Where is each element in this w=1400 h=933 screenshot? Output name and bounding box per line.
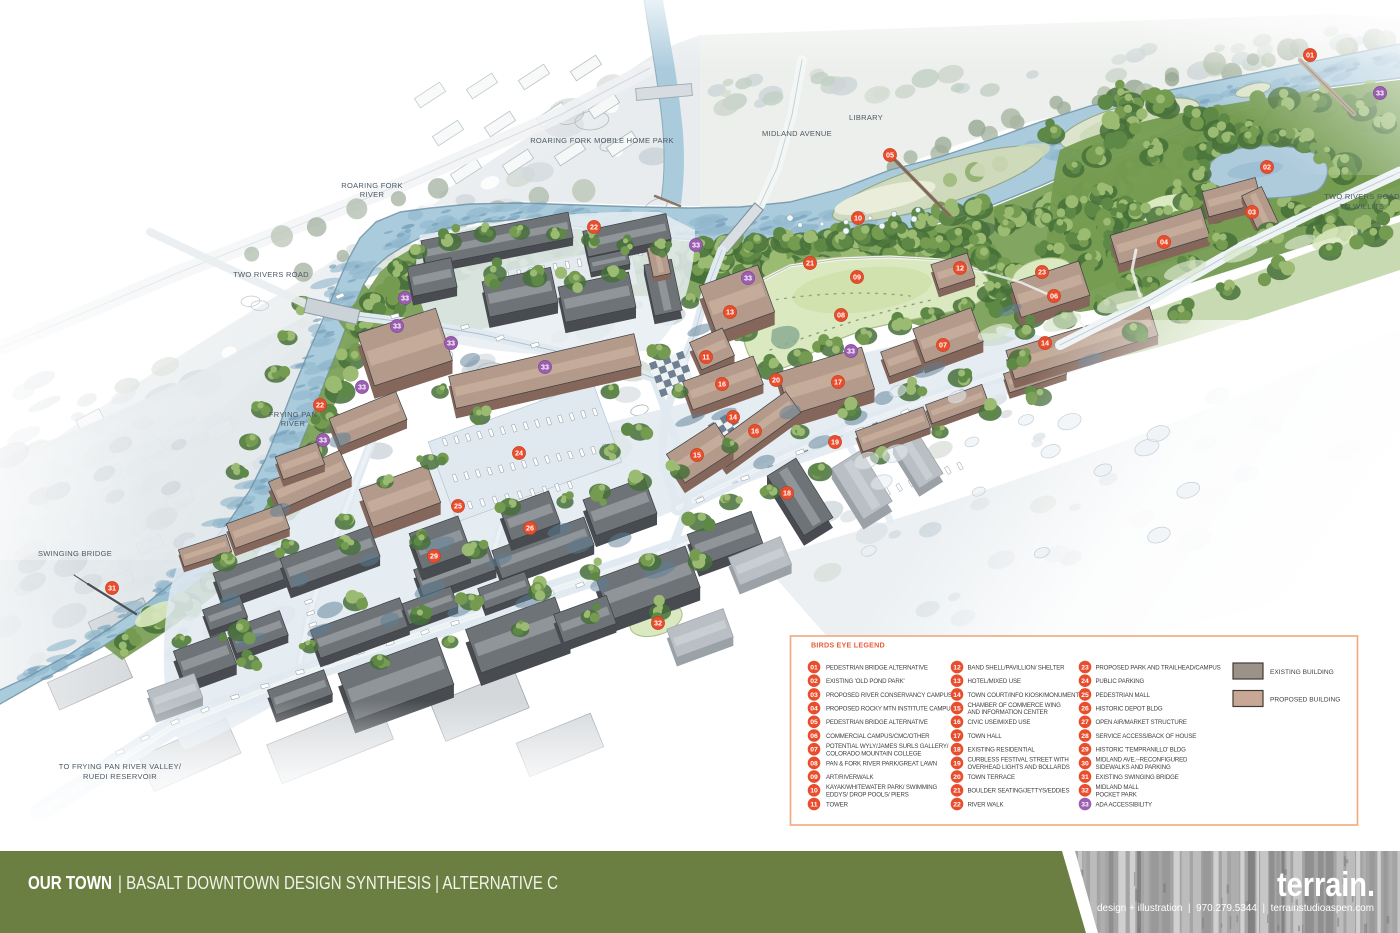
svg-text:PAN & FORK RIVER PARK/GREAT LA: PAN & FORK RIVER PARK/GREAT LAWN bbox=[826, 760, 937, 767]
svg-text:16: 16 bbox=[751, 427, 759, 436]
svg-text:MIDLAND MALL: MIDLAND MALL bbox=[1096, 784, 1140, 791]
svg-text:SERVICE ACCESS/BACK OF HOUSE: SERVICE ACCESS/BACK OF HOUSE bbox=[1096, 733, 1197, 740]
svg-text:08: 08 bbox=[810, 760, 818, 767]
svg-text:KAYAK/WHITEWATER PARK/ SWIMMIN: KAYAK/WHITEWATER PARK/ SWIMMING bbox=[826, 784, 938, 791]
svg-text:SIDEWALKS AND PARKING: SIDEWALKS AND PARKING bbox=[1096, 764, 1171, 771]
svg-text:33: 33 bbox=[401, 294, 409, 303]
svg-text:23: 23 bbox=[1081, 664, 1089, 671]
svg-text:06: 06 bbox=[1050, 292, 1058, 301]
svg-text:33: 33 bbox=[358, 383, 366, 392]
svg-text:| BASALT DOWNTOWN DESIGN SYNTH: | BASALT DOWNTOWN DESIGN SYNTHESIS | ALT… bbox=[118, 872, 558, 893]
svg-text:CURBLESS FESTIVAL STREET WITH: CURBLESS FESTIVAL STREET WITH bbox=[968, 757, 1069, 764]
svg-text:EXISTING BUILDING: EXISTING BUILDING bbox=[1270, 669, 1334, 676]
svg-text:11: 11 bbox=[702, 353, 710, 362]
svg-text:01: 01 bbox=[1306, 51, 1314, 60]
svg-text:30: 30 bbox=[1081, 760, 1089, 767]
svg-text:04: 04 bbox=[1160, 238, 1168, 247]
svg-text:BOULDER SEATING/JETTYS/EDDIES: BOULDER SEATING/JETTYS/EDDIES bbox=[968, 788, 1070, 795]
svg-text:ART/RIVERWALK: ART/RIVERWALK bbox=[826, 774, 873, 781]
svg-text:EXISTING SWINGING BRIDGE: EXISTING SWINGING BRIDGE bbox=[1096, 774, 1179, 781]
svg-text:ADA ACCESSIBILITY: ADA ACCESSIBILITY bbox=[1096, 801, 1152, 808]
svg-text:PROPOSED PARK AND TRAILHEAD/CA: PROPOSED PARK AND TRAILHEAD/CAMPUS bbox=[1096, 664, 1221, 671]
svg-text:COMMERCIAL CAMPUS/CMC/OTHER: COMMERCIAL CAMPUS/CMC/OTHER bbox=[826, 733, 930, 740]
svg-text:TWO RIVERS ROAD: TWO RIVERS ROAD bbox=[233, 270, 309, 279]
svg-text:26: 26 bbox=[526, 524, 534, 533]
svg-text:RIVER: RIVER bbox=[281, 419, 306, 428]
svg-text:TOWN COURT/INFO KIOSK/MONUMENT: TOWN COURT/INFO KIOSK/MONUMENT bbox=[968, 692, 1080, 699]
svg-text:design + illustration | 970.: design + illustration | 970.279.5344 | t… bbox=[1097, 902, 1374, 914]
svg-text:25: 25 bbox=[454, 502, 462, 511]
svg-text:20: 20 bbox=[953, 774, 961, 781]
svg-text:33: 33 bbox=[541, 363, 549, 372]
svg-text:ROARING FORK MOBILE HOME PARK: ROARING FORK MOBILE HOME PARK bbox=[530, 136, 674, 145]
svg-text:MIDLAND AVE.--RECONFIGURED: MIDLAND AVE.--RECONFIGURED bbox=[1096, 757, 1189, 764]
svg-text:31: 31 bbox=[1081, 774, 1089, 781]
svg-text:05: 05 bbox=[810, 719, 818, 726]
svg-text:TO WILLITS: TO WILLITS bbox=[1340, 202, 1385, 211]
svg-text:22: 22 bbox=[316, 401, 324, 410]
svg-text:33: 33 bbox=[447, 339, 455, 348]
svg-text:24: 24 bbox=[1081, 678, 1089, 685]
svg-text:EXISTING 'OLD POND PARK': EXISTING 'OLD POND PARK' bbox=[826, 678, 905, 685]
svg-text:11: 11 bbox=[810, 801, 817, 808]
svg-text:POTENTIAL WYLY/JAMES SURLS GAL: POTENTIAL WYLY/JAMES SURLS GALLERY/ bbox=[826, 743, 949, 750]
svg-text:07: 07 bbox=[939, 341, 947, 350]
svg-text:02: 02 bbox=[810, 678, 818, 685]
svg-text:22: 22 bbox=[953, 801, 961, 808]
svg-text:32: 32 bbox=[654, 619, 662, 628]
svg-text:21: 21 bbox=[806, 259, 814, 268]
svg-text:BAND SHELL/PAVILLION/ SHELTER: BAND SHELL/PAVILLION/ SHELTER bbox=[968, 664, 1066, 671]
svg-text:10: 10 bbox=[810, 788, 818, 795]
svg-text:01: 01 bbox=[810, 664, 818, 671]
svg-text:TOWER: TOWER bbox=[826, 801, 849, 808]
svg-text:OPEN AIR/MARKET STRUCTURE: OPEN AIR/MARKET STRUCTURE bbox=[1096, 719, 1187, 726]
svg-text:27: 27 bbox=[1081, 719, 1089, 726]
svg-text:EXISTING RESIDENTIAL: EXISTING RESIDENTIAL bbox=[968, 747, 1036, 754]
svg-text:33: 33 bbox=[1081, 801, 1089, 808]
svg-text:28: 28 bbox=[1081, 733, 1089, 740]
svg-text:PROPOSED BUILDING: PROPOSED BUILDING bbox=[1270, 697, 1340, 704]
svg-text:25: 25 bbox=[1081, 692, 1089, 699]
svg-text:10: 10 bbox=[854, 214, 862, 223]
svg-text:PEDESTRIAN BRIDGE ALTERNATIVE: PEDESTRIAN BRIDGE ALTERNATIVE bbox=[826, 664, 928, 671]
svg-text:HOTEL/MIXED USE: HOTEL/MIXED USE bbox=[968, 678, 1021, 685]
svg-text:POCKET PARK: POCKET PARK bbox=[1096, 791, 1137, 798]
svg-text:AND INFORMATION CENTER: AND INFORMATION CENTER bbox=[968, 709, 1049, 716]
svg-text:LIBRARY: LIBRARY bbox=[849, 113, 883, 122]
svg-text:09: 09 bbox=[810, 774, 818, 781]
svg-text:05: 05 bbox=[886, 151, 894, 160]
svg-text:18: 18 bbox=[783, 489, 791, 498]
svg-text:06: 06 bbox=[810, 733, 818, 740]
svg-text:SWINGING BRIDGE: SWINGING BRIDGE bbox=[38, 549, 112, 558]
svg-text:18: 18 bbox=[953, 747, 961, 754]
svg-text:PROPOSED ROCKY MTN INSTITUTE C: PROPOSED ROCKY MTN INSTITUTE CAMPUS bbox=[826, 706, 954, 713]
svg-text:15: 15 bbox=[953, 706, 961, 713]
svg-text:33: 33 bbox=[692, 241, 700, 250]
svg-text:26: 26 bbox=[1081, 706, 1089, 713]
svg-text:19: 19 bbox=[953, 760, 961, 767]
svg-text:14: 14 bbox=[1041, 339, 1049, 348]
svg-text:22: 22 bbox=[590, 223, 598, 232]
svg-text:19: 19 bbox=[831, 438, 839, 447]
svg-text:16: 16 bbox=[953, 719, 961, 726]
svg-text:MIDLAND AVENUE: MIDLAND AVENUE bbox=[762, 129, 832, 138]
svg-text:13: 13 bbox=[726, 308, 734, 317]
svg-text:HISTORIC DEPOT BLDG: HISTORIC DEPOT BLDG bbox=[1096, 706, 1163, 713]
svg-text:PEDESTRIAN MALL: PEDESTRIAN MALL bbox=[1096, 692, 1151, 699]
svg-text:33: 33 bbox=[319, 436, 327, 445]
svg-text:TOWN HALL: TOWN HALL bbox=[968, 733, 1003, 740]
svg-text:02: 02 bbox=[1263, 163, 1271, 172]
svg-text:13: 13 bbox=[953, 678, 961, 685]
svg-text:12: 12 bbox=[956, 264, 964, 273]
svg-text:04: 04 bbox=[810, 706, 818, 713]
svg-text:24: 24 bbox=[515, 449, 523, 458]
svg-text:TWO RIVERS ROAD: TWO RIVERS ROAD bbox=[1324, 192, 1400, 201]
svg-text:15: 15 bbox=[693, 451, 701, 460]
svg-text:08: 08 bbox=[837, 311, 845, 320]
svg-text:PROPOSED RIVER CONSERVANCY CAM: PROPOSED RIVER CONSERVANCY CAMPUS bbox=[826, 692, 952, 699]
svg-text:BIRDS EYE LEGEND: BIRDS EYE LEGEND bbox=[811, 641, 885, 650]
svg-text:ROARING FORK: ROARING FORK bbox=[341, 181, 403, 190]
svg-text:29: 29 bbox=[430, 552, 438, 561]
svg-text:33: 33 bbox=[847, 347, 855, 356]
svg-text:CHAMBER OF COMMERCE WING: CHAMBER OF COMMERCE WING bbox=[968, 702, 1062, 709]
svg-text:33: 33 bbox=[393, 322, 401, 331]
svg-text:17: 17 bbox=[834, 378, 842, 387]
svg-text:RIVER: RIVER bbox=[360, 190, 385, 199]
svg-text:TOWN TERRACE: TOWN TERRACE bbox=[968, 774, 1015, 781]
svg-text:20: 20 bbox=[772, 376, 780, 385]
svg-text:EDDYS/ DROP POOLS/ PIERS: EDDYS/ DROP POOLS/ PIERS bbox=[826, 791, 909, 798]
svg-text:HISTORIC 'TEMPRANILLO' BLDG: HISTORIC 'TEMPRANILLO' BLDG bbox=[1096, 747, 1187, 754]
svg-text:33: 33 bbox=[744, 274, 752, 283]
svg-text:03: 03 bbox=[1248, 208, 1256, 217]
svg-text:COLORADO MOUNTAIN COLLEGE: COLORADO MOUNTAIN COLLEGE bbox=[826, 750, 921, 757]
svg-text:16: 16 bbox=[718, 380, 726, 389]
svg-text:OVERHEAD LIGHTS AND BOLLARDS: OVERHEAD LIGHTS AND BOLLARDS bbox=[968, 764, 1070, 771]
svg-text:29: 29 bbox=[1081, 747, 1089, 754]
svg-text:12: 12 bbox=[953, 664, 961, 671]
svg-text:CIVIC USE/MIXED USE: CIVIC USE/MIXED USE bbox=[968, 719, 1031, 726]
svg-text:PUBLIC PARKING: PUBLIC PARKING bbox=[1096, 678, 1145, 685]
svg-text:OUR TOWN: OUR TOWN bbox=[28, 872, 112, 893]
svg-text:17: 17 bbox=[953, 733, 961, 740]
svg-text:21: 21 bbox=[953, 788, 961, 795]
svg-text:31: 31 bbox=[108, 584, 116, 593]
svg-text:23: 23 bbox=[1038, 268, 1046, 277]
svg-text:32: 32 bbox=[1081, 788, 1089, 795]
svg-text:terrain.: terrain. bbox=[1277, 866, 1375, 904]
svg-text:RUEDI RESERVOIR: RUEDI RESERVOIR bbox=[83, 772, 157, 781]
svg-text:FRYING PAN: FRYING PAN bbox=[269, 410, 317, 419]
svg-text:09: 09 bbox=[853, 273, 861, 282]
svg-text:RIVER WALK: RIVER WALK bbox=[968, 801, 1004, 808]
svg-text:07: 07 bbox=[810, 747, 818, 754]
svg-text:14: 14 bbox=[729, 413, 737, 422]
svg-text:PEDESTRIAN BRIDGE ALTERNATIVE: PEDESTRIAN BRIDGE ALTERNATIVE bbox=[826, 719, 928, 726]
svg-text:03: 03 bbox=[810, 692, 818, 699]
svg-text:33: 33 bbox=[1376, 89, 1384, 98]
svg-text:14: 14 bbox=[953, 692, 961, 699]
svg-text:TO FRYING PAN RIVER VALLEY/: TO FRYING PAN RIVER VALLEY/ bbox=[59, 762, 182, 771]
